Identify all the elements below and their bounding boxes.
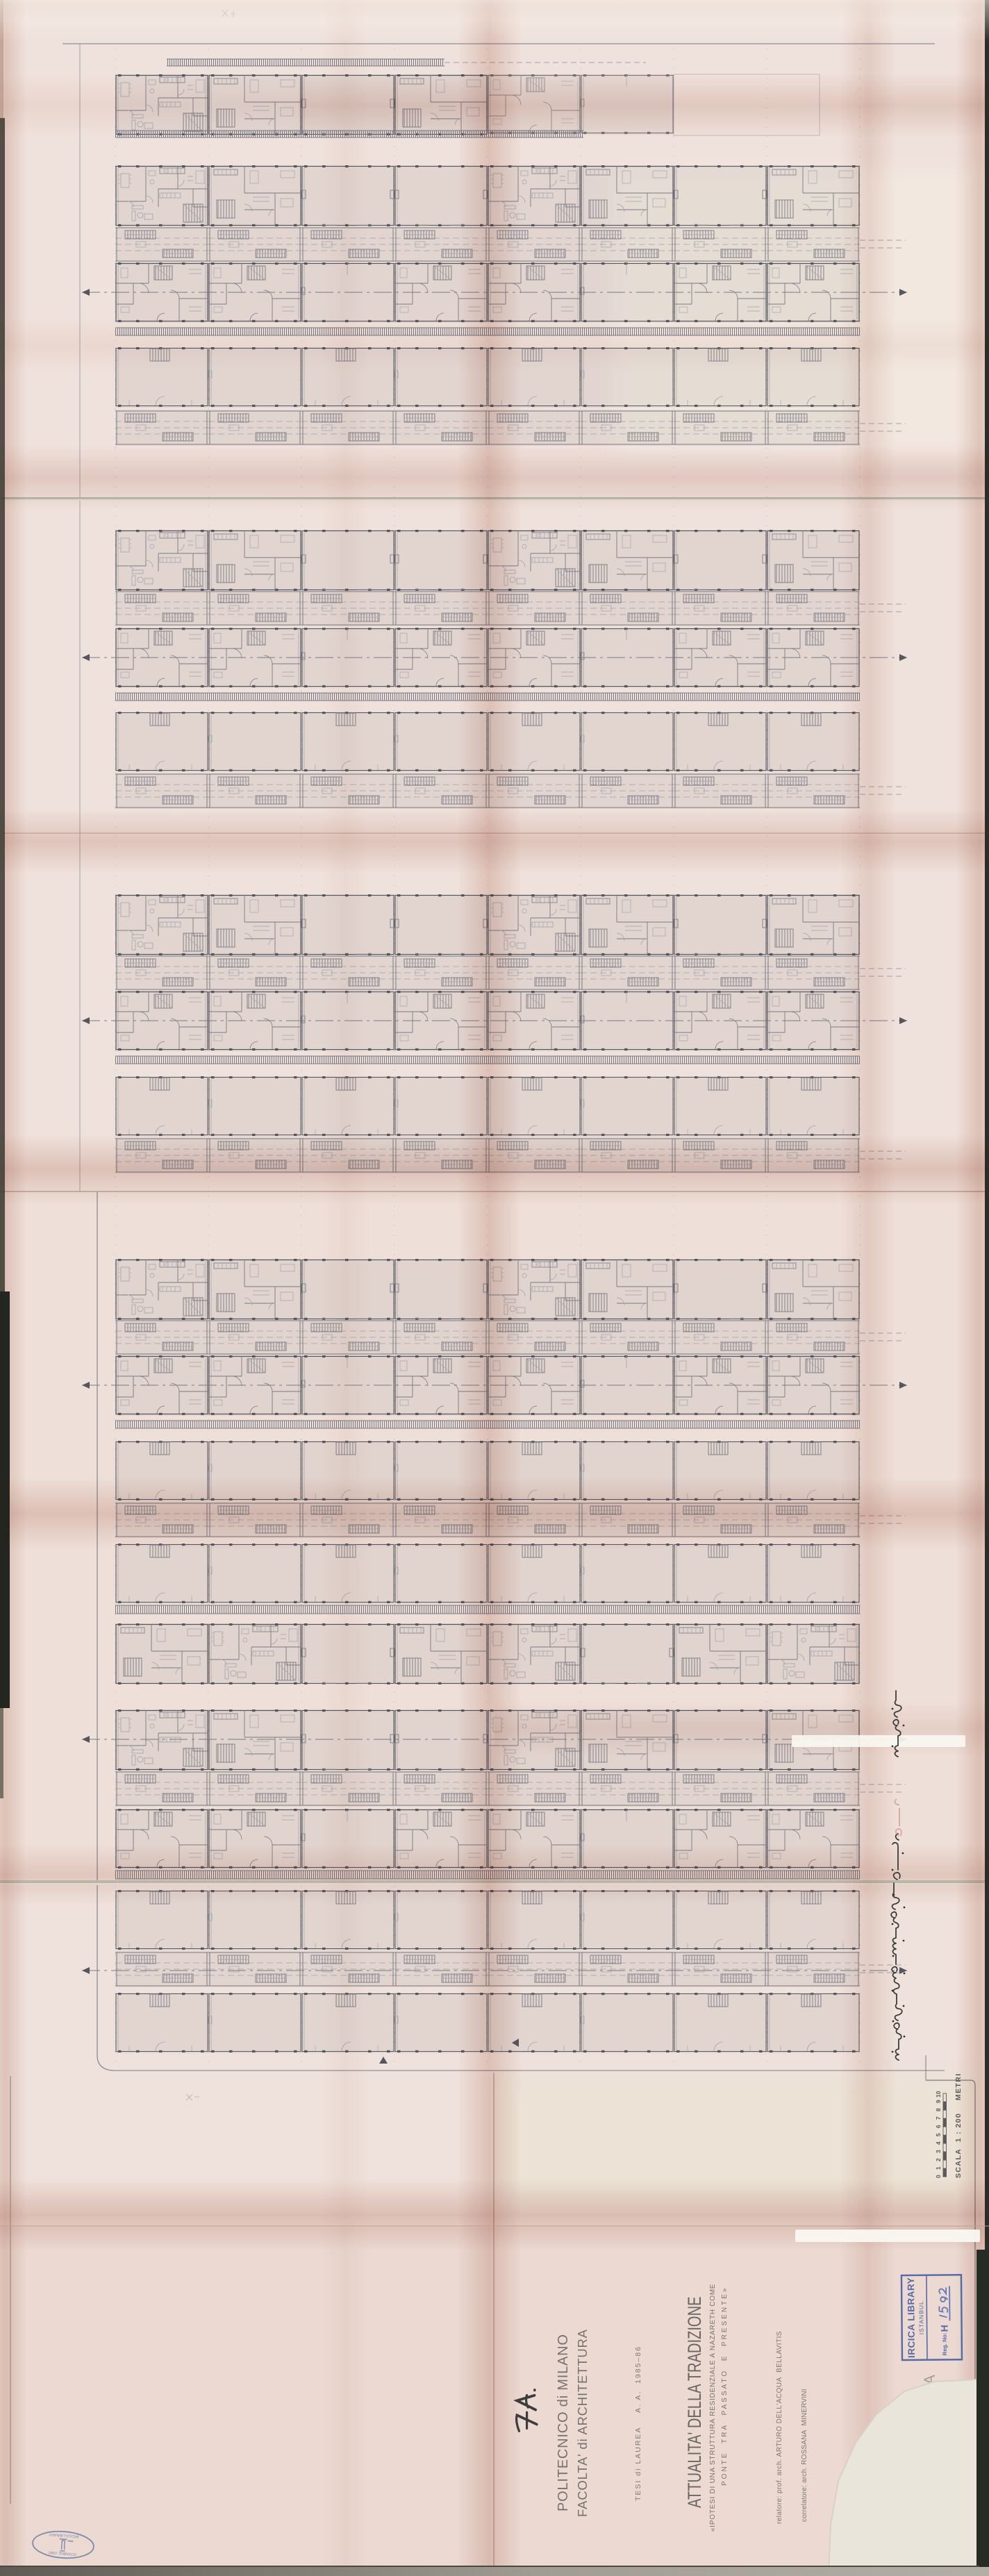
svg-text:9: 9 [935,2100,942,2103]
svg-text:8: 8 [935,2108,942,2111]
svg-text:1: 1 [935,2166,942,2170]
svg-text:SCALA 1 : 200: SCALA 1 : 200 [954,2113,963,2178]
svg-text:0: 0 [935,2175,942,2178]
svg-text:7: 7 [935,2116,942,2120]
svg-text:2: 2 [935,2158,942,2161]
svg-text:4: 4 [935,2141,942,2145]
svg-text:10: 10 [935,2091,942,2098]
svg-text:5: 5 [935,2133,942,2136]
svg-text:6: 6 [935,2125,942,2128]
svg-text:3: 3 [935,2150,942,2153]
svg-text:METRI: METRI [954,2073,963,2100]
